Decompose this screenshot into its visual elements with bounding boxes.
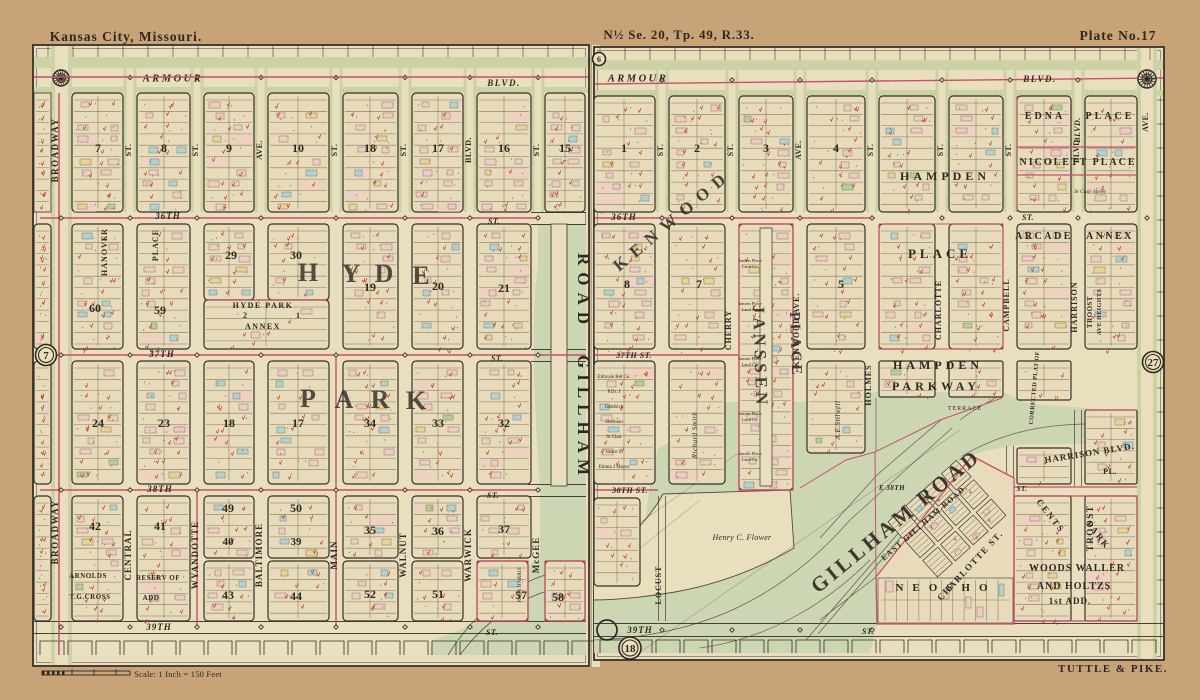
svg-text:BLVD.: BLVD. — [464, 137, 473, 163]
svg-text:23: 23 — [158, 416, 170, 430]
svg-text:ST.: ST. — [862, 627, 874, 636]
svg-text:NICOLETT PLACE: NICOLETT PLACE — [1019, 157, 1136, 168]
svg-text:ARNOLDS: ARNOLDS — [69, 572, 107, 580]
svg-text:51: 51 — [432, 587, 444, 601]
svg-text:AVE.: AVE. — [1141, 112, 1150, 132]
svg-text:8: 8 — [161, 141, 167, 155]
svg-text:CHERRY: CHERRY — [724, 310, 733, 350]
svg-text:P: P — [300, 384, 316, 413]
svg-text:60: 60 — [89, 301, 101, 315]
svg-text:ROAD: ROAD — [574, 253, 593, 331]
svg-text:TERRACE: TERRACE — [948, 406, 982, 412]
svg-text:K: K — [406, 386, 427, 415]
svg-text:NEOSHO: NEOSHO — [895, 582, 996, 594]
svg-text:Land Co.: Land Co. — [741, 457, 758, 462]
svg-text:7: 7 — [696, 277, 702, 291]
svg-text:AVE.: AVE. — [794, 140, 803, 160]
svg-text:Emma J Mayer: Emma J Mayer — [599, 465, 630, 470]
svg-text:ANNEX: ANNEX — [245, 322, 281, 331]
svg-text:JOHN HARRIS: JOHN HARRIS — [517, 567, 523, 603]
svg-text:44: 44 — [290, 589, 302, 603]
svg-text:HARRISON: HARRISON — [1070, 281, 1079, 332]
svg-text:17: 17 — [432, 141, 444, 155]
svg-text:St Clair Street: St Clair Street — [1074, 189, 1106, 195]
svg-text:33: 33 — [432, 416, 444, 430]
svg-text:ST.: ST. — [936, 144, 945, 157]
svg-text:WALNUT: WALNUT — [398, 532, 408, 578]
svg-text:2: 2 — [694, 141, 700, 155]
svg-text:PLACE: PLACE — [1086, 111, 1135, 122]
svg-text:7: 7 — [95, 141, 101, 155]
svg-text:38TH: 38TH — [146, 484, 173, 494]
svg-text:PLACE: PLACE — [908, 246, 972, 261]
svg-text:ST.: ST. — [1022, 213, 1034, 222]
svg-text:BROADWAY: BROADWAY — [50, 118, 60, 183]
svg-text:58: 58 — [552, 590, 564, 604]
svg-text:N½ Se. 20, Tp. 49, R.33.: N½ Se. 20, Tp. 49, R.33. — [603, 27, 754, 42]
svg-text:McGEE: McGEE — [531, 537, 541, 574]
svg-text:59: 59 — [154, 303, 166, 317]
svg-text:CAMPBELL: CAMPBELL — [1002, 278, 1011, 331]
svg-text:Henry C. Flower: Henry C. Flower — [712, 533, 773, 542]
svg-text:PLACE: PLACE — [786, 312, 804, 378]
svg-text:7: 7 — [43, 350, 49, 362]
svg-text:ST.: ST. — [726, 144, 735, 157]
svg-text:E: E — [412, 261, 429, 290]
svg-text:Land Co.: Land Co. — [741, 307, 758, 312]
svg-text:50: 50 — [290, 501, 302, 515]
svg-text:BALTIMORE: BALTIMORE — [254, 523, 264, 587]
svg-text:27: 27 — [1148, 357, 1160, 369]
svg-text:Jansen Place: Jansen Place — [738, 258, 761, 263]
svg-text:4: 4 — [833, 141, 839, 155]
svg-text:R: R — [371, 385, 390, 414]
svg-text:HYDE PARK: HYDE PARK — [233, 301, 294, 310]
svg-text:GILLHAM: GILLHAM — [574, 355, 593, 481]
svg-text:29: 29 — [225, 248, 237, 262]
svg-text:P.Dr. J: P.Dr. J — [608, 390, 621, 395]
svg-text:Jansen Place: Jansen Place — [738, 411, 761, 416]
svg-text:ADD: ADD — [143, 594, 160, 602]
svg-text:D: D — [375, 259, 394, 288]
svg-text:ARMOUR: ARMOUR — [607, 74, 669, 85]
svg-text:BLVD.: BLVD. — [1073, 117, 1082, 144]
svg-text:Land Co.: Land Co. — [741, 362, 758, 367]
svg-text:HOLMES: HOLMES — [864, 364, 873, 405]
svg-text:MAIN: MAIN — [329, 541, 339, 570]
svg-text:ARCADE: ARCADE — [1015, 231, 1073, 242]
svg-text:TUTTLE & PIKE.: TUTTLE & PIKE. — [1058, 663, 1168, 675]
svg-text:Elmvale Rel Co.: Elmvale Rel Co. — [597, 375, 630, 380]
svg-text:41: 41 — [154, 519, 166, 533]
svg-text:9: 9 — [226, 141, 232, 155]
svg-text:39: 39 — [291, 536, 303, 548]
svg-text:PARKWAY: PARKWAY — [892, 379, 980, 393]
svg-text:38TH ST.: 38TH ST. — [611, 486, 648, 495]
svg-text:A: A — [335, 385, 354, 414]
svg-text:ST.: ST. — [486, 628, 498, 637]
svg-text:ST.: ST. — [488, 217, 500, 226]
svg-text:ST.: ST. — [487, 491, 499, 500]
svg-text:BLVD.: BLVD. — [1022, 74, 1056, 84]
svg-text:20: 20 — [432, 279, 444, 293]
svg-text:AVE.: AVE. — [255, 140, 264, 160]
svg-text:17: 17 — [292, 416, 304, 430]
svg-text:37: 37 — [498, 522, 510, 536]
svg-text:37TH: 37TH — [148, 349, 175, 359]
svg-text:LOCUST: LOCUST — [654, 566, 663, 605]
svg-text:HAMPDEN: HAMPDEN — [893, 358, 983, 372]
svg-text:5: 5 — [838, 277, 844, 291]
svg-text:42: 42 — [89, 519, 101, 533]
svg-text:Gabdrich: Gabdrich — [605, 405, 624, 410]
svg-text:HANOVER: HANOVER — [100, 228, 109, 276]
svg-text:36TH: 36TH — [610, 212, 637, 222]
svg-text:EDNA: EDNA — [1025, 111, 1065, 122]
svg-text:Richard Smith: Richard Smith — [691, 412, 699, 460]
svg-text:ANNEX: ANNEX — [1086, 231, 1134, 242]
svg-text:ST.: ST. — [330, 144, 339, 157]
svg-text:BLVD.: BLVD. — [486, 78, 520, 88]
svg-text:6: 6 — [597, 55, 601, 64]
svg-text:Land Co.: Land Co. — [741, 264, 758, 269]
svg-text:CHARLOTTE: CHARLOTTE — [934, 280, 943, 340]
svg-text:PL.: PL. — [1103, 467, 1117, 476]
svg-text:E 38TH: E 38TH — [878, 484, 905, 492]
svg-text:ST.: ST. — [866, 144, 875, 157]
svg-text:A.E.Stilwell: A.E.Stilwell — [834, 400, 842, 440]
svg-text:52: 52 — [364, 587, 376, 601]
svg-text:49: 49 — [222, 501, 234, 515]
svg-text:BROADWAY: BROADWAY — [50, 500, 60, 565]
svg-text:AND HOLTZS: AND HOLTZS — [1037, 581, 1111, 592]
svg-text:Scale: 1 Inch = 150 Feet: Scale: 1 Inch = 150 Feet — [134, 669, 222, 679]
svg-text:39TH: 39TH — [145, 622, 172, 632]
svg-text:40: 40 — [223, 536, 235, 548]
svg-text:35: 35 — [364, 523, 376, 537]
svg-text:ARMOUR: ARMOUR — [142, 74, 204, 85]
svg-text:WARWICK: WARWICK — [463, 528, 473, 582]
svg-text:TROOST: TROOST — [1086, 296, 1094, 328]
svg-text:ST.: ST. — [399, 144, 408, 157]
svg-text:ST.: ST. — [491, 354, 503, 363]
svg-text:T.G.CROSS: T.G.CROSS — [70, 593, 111, 601]
svg-text:ST.: ST. — [191, 144, 200, 157]
svg-text:18: 18 — [625, 643, 637, 655]
svg-text:10: 10 — [292, 141, 304, 155]
svg-text:Shelman: Shelman — [605, 420, 623, 425]
svg-text:36: 36 — [432, 524, 444, 538]
svg-text:AVE HEIGHTS: AVE HEIGHTS — [1097, 289, 1103, 336]
svg-text:Jansen Place: Jansen Place — [738, 301, 761, 306]
svg-text:Land Co.: Land Co. — [741, 417, 758, 422]
svg-text:18: 18 — [364, 141, 376, 155]
svg-text:ST.: ST. — [656, 144, 665, 157]
svg-text:Vance S.: Vance S. — [605, 450, 623, 455]
svg-text:WYANDOTTE: WYANDOTTE — [190, 521, 200, 589]
svg-text:15: 15 — [559, 141, 571, 155]
svg-text:WOODS WALLER: WOODS WALLER — [1029, 563, 1125, 574]
svg-text:21: 21 — [498, 281, 510, 295]
svg-text:Plate No.17: Plate No.17 — [1080, 28, 1157, 43]
svg-text:PLACE: PLACE — [151, 229, 160, 261]
svg-text:43: 43 — [222, 588, 234, 602]
svg-text:Jansen Place: Jansen Place — [738, 451, 761, 456]
svg-text:ST.: ST. — [532, 144, 541, 157]
svg-text:ST.: ST. — [124, 144, 133, 157]
svg-text:8: 8 — [624, 277, 630, 291]
svg-text:39TH: 39TH — [626, 625, 653, 635]
svg-text:1st ADD.: 1st ADD. — [1049, 596, 1092, 606]
svg-text:37TH ST.: 37TH ST. — [615, 351, 652, 360]
svg-text:HAMPDEN: HAMPDEN — [900, 169, 990, 183]
svg-text:16: 16 — [498, 141, 510, 155]
svg-text:Kansas City, Missouri.: Kansas City, Missouri. — [50, 29, 203, 44]
svg-text:1: 1 — [621, 141, 627, 155]
svg-text:Jansen Place: Jansen Place — [738, 356, 761, 361]
svg-text:Y: Y — [342, 259, 361, 288]
svg-text:24: 24 — [92, 416, 104, 430]
svg-text:1: 1 — [296, 311, 300, 320]
svg-text:34: 34 — [364, 416, 376, 430]
svg-text:RESERV OF: RESERV OF — [136, 574, 180, 582]
svg-text:H: H — [298, 258, 318, 287]
svg-text:St Clair: St Clair — [606, 435, 622, 440]
svg-text:CENTRAL: CENTRAL — [123, 529, 133, 580]
svg-text:3: 3 — [763, 141, 769, 155]
svg-text:36TH: 36TH — [154, 211, 181, 221]
svg-text:ST.: ST. — [1004, 144, 1013, 157]
svg-text:18: 18 — [223, 416, 235, 430]
svg-text:ST.: ST. — [1017, 485, 1028, 493]
svg-text:2: 2 — [243, 311, 247, 320]
svg-text:32: 32 — [498, 416, 510, 430]
